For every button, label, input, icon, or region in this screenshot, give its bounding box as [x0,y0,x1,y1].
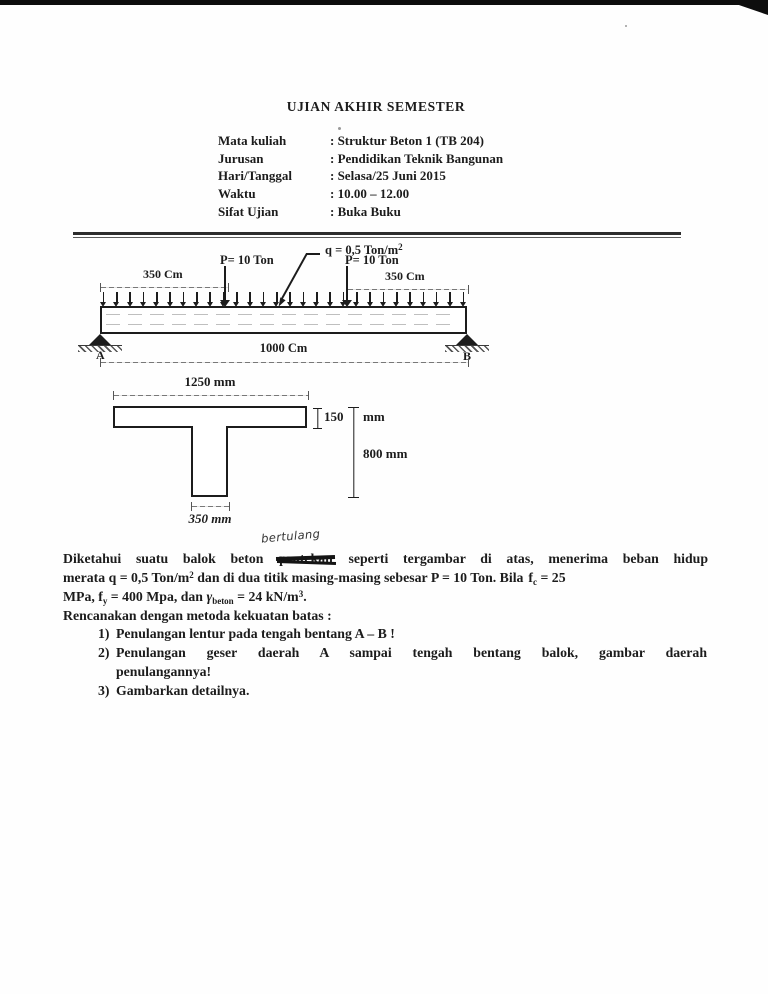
info-row-course: Mata kuliah : Struktur Beton 1 (TB 204) [218,132,503,150]
flange-unit-label: mm [363,409,385,425]
load-arrow [300,292,307,307]
depth-dim [348,407,359,498]
t-section-flange [113,406,307,428]
depth-label: 800 mm [363,446,407,462]
load-arrow [247,292,254,307]
scanned-exam-page: UJIAN AKHIR SEMESTER Mata kuliah : Struk… [0,0,768,994]
exam-title: UJIAN AKHIR SEMESTER [0,99,752,115]
load-arrow [420,292,427,307]
scan-streak [106,314,455,315]
load-arrow [260,292,267,307]
span-dim-line-left [100,283,229,292]
item-number: 2) [98,645,110,661]
load-arrow [433,292,440,307]
load-arrow [127,292,134,307]
handwritten-annotation: bertulang [261,526,321,545]
info-row-date: Hari/Tanggal : Selasa/25 Juni 2015 [218,167,503,185]
load-arrow [340,292,347,307]
q-leader-stub [306,253,320,255]
load-arrow [460,292,467,307]
info-label: Hari/Tanggal [218,167,330,185]
item-number: 3) [98,683,110,699]
load-arrow [140,292,147,307]
info-label: Jurusan [218,150,330,168]
task-item-2-continued: penulangannya! [116,664,211,680]
info-value: : 10.00 – 12.00 [330,185,409,203]
task-item-3: Gambarkan detailnya. [116,683,249,699]
info-value: : Struktur Beton 1 (TB 204) [330,132,484,150]
info-value: : Buka Buku [330,203,401,221]
load-arrow [353,292,360,307]
load-arrow [273,292,280,307]
item-number: 1) [98,626,110,642]
load-arrow [167,292,174,307]
section-width-label: 1250 mm [113,374,307,390]
info-value: : Selasa/25 Juni 2015 [330,167,446,185]
load-arrow [233,292,240,307]
total-span-dim-line [100,358,469,367]
info-label: Waktu [218,185,330,203]
problem-line-1: Diketahui suatu balok beton pratekan sep… [63,551,708,567]
section-width-dim-line [113,391,309,400]
total-span-label: 1000 Cm [100,341,467,356]
t-section-web [191,426,228,497]
problem-line-3: MPa, fy = 400 Mpa, dan γbeton = 24 kN/m3… [63,589,708,606]
section-divider [73,237,681,238]
flange-thickness-label: 150 [324,409,344,425]
load-arrow [407,292,414,307]
info-value: : Pendidikan Teknik Bangunan [330,150,503,168]
span-dim-label-right: 350 Cm [385,269,425,284]
load-arrow [180,292,187,307]
section-divider [73,232,681,235]
load-arrow [100,292,107,307]
info-row-time: Waktu : 10.00 – 12.00 [218,185,503,203]
web-width-label: 350 mm [181,511,239,527]
load-arrow [380,292,387,307]
load-arrow [220,292,227,307]
load-arrow [193,292,200,307]
distributed-load-arrows [100,292,467,307]
task-item-2: Penulangan geser daerah A sampai tengah … [116,645,707,661]
load-arrow [113,292,120,307]
exam-info-table: Mata kuliah : Struktur Beton 1 (TB 204) … [218,132,503,221]
load-arrow [393,292,400,307]
info-label: Mata kuliah [218,132,330,150]
flange-thickness-dim [313,408,322,429]
point-load-label-right: P= 10 Ton [345,253,399,268]
info-row-exam-type: Sifat Ujian : Buka Buku [218,203,503,221]
problem-line-2: merata q = 0,5 Ton/m2 dan di dua titik m… [63,570,708,587]
load-arrow [207,292,214,307]
load-arrow [153,292,160,307]
load-arrow [447,292,454,307]
span-dim-label-left: 350 Cm [143,267,183,282]
scan-speck [625,25,627,27]
web-width-dim-line [191,502,230,511]
load-arrow [327,292,334,307]
scan-speck [338,127,341,130]
strikethrough-word: pratekan [278,551,334,566]
info-label: Sifat Ujian [218,203,330,221]
problem-line-4: Rencanakan dengan metoda kekuatan batas … [63,608,708,624]
load-arrow [367,292,374,307]
info-row-department: Jurusan : Pendidikan Teknik Bangunan [218,150,503,168]
load-arrow [313,292,320,307]
task-item-1: Penulangan lentur pada tengah bentang A … [116,626,395,642]
scan-streak [106,324,455,325]
beam-body [100,306,467,334]
load-arrow [287,292,294,307]
